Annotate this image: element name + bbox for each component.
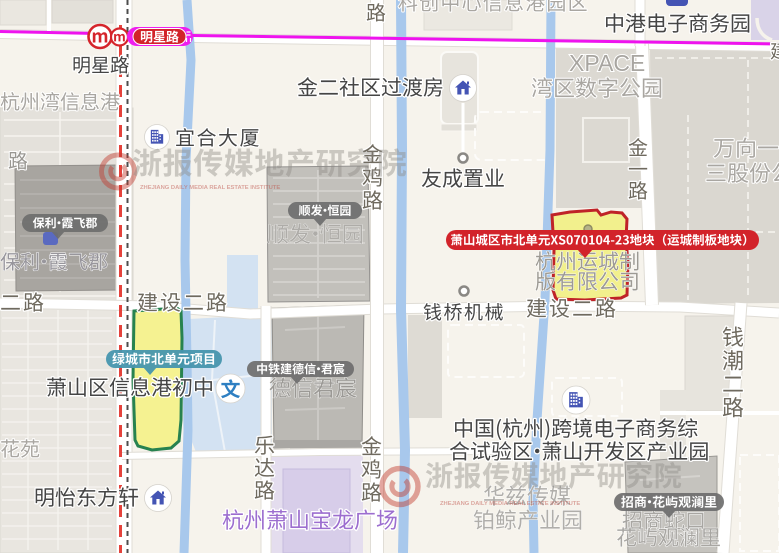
svg-text:ZHEJIANG DAILY MEDIA REAL ESTA: ZHEJIANG DAILY MEDIA REAL ESTATE INSTITU… [140,185,280,191]
svg-text:XPACE: XPACE [569,50,645,76]
svg-text:ZHEJIANG DAILY MEDIA REAL ESTA: ZHEJIANG DAILY MEDIA REAL ESTATE INSTITU… [440,501,580,507]
